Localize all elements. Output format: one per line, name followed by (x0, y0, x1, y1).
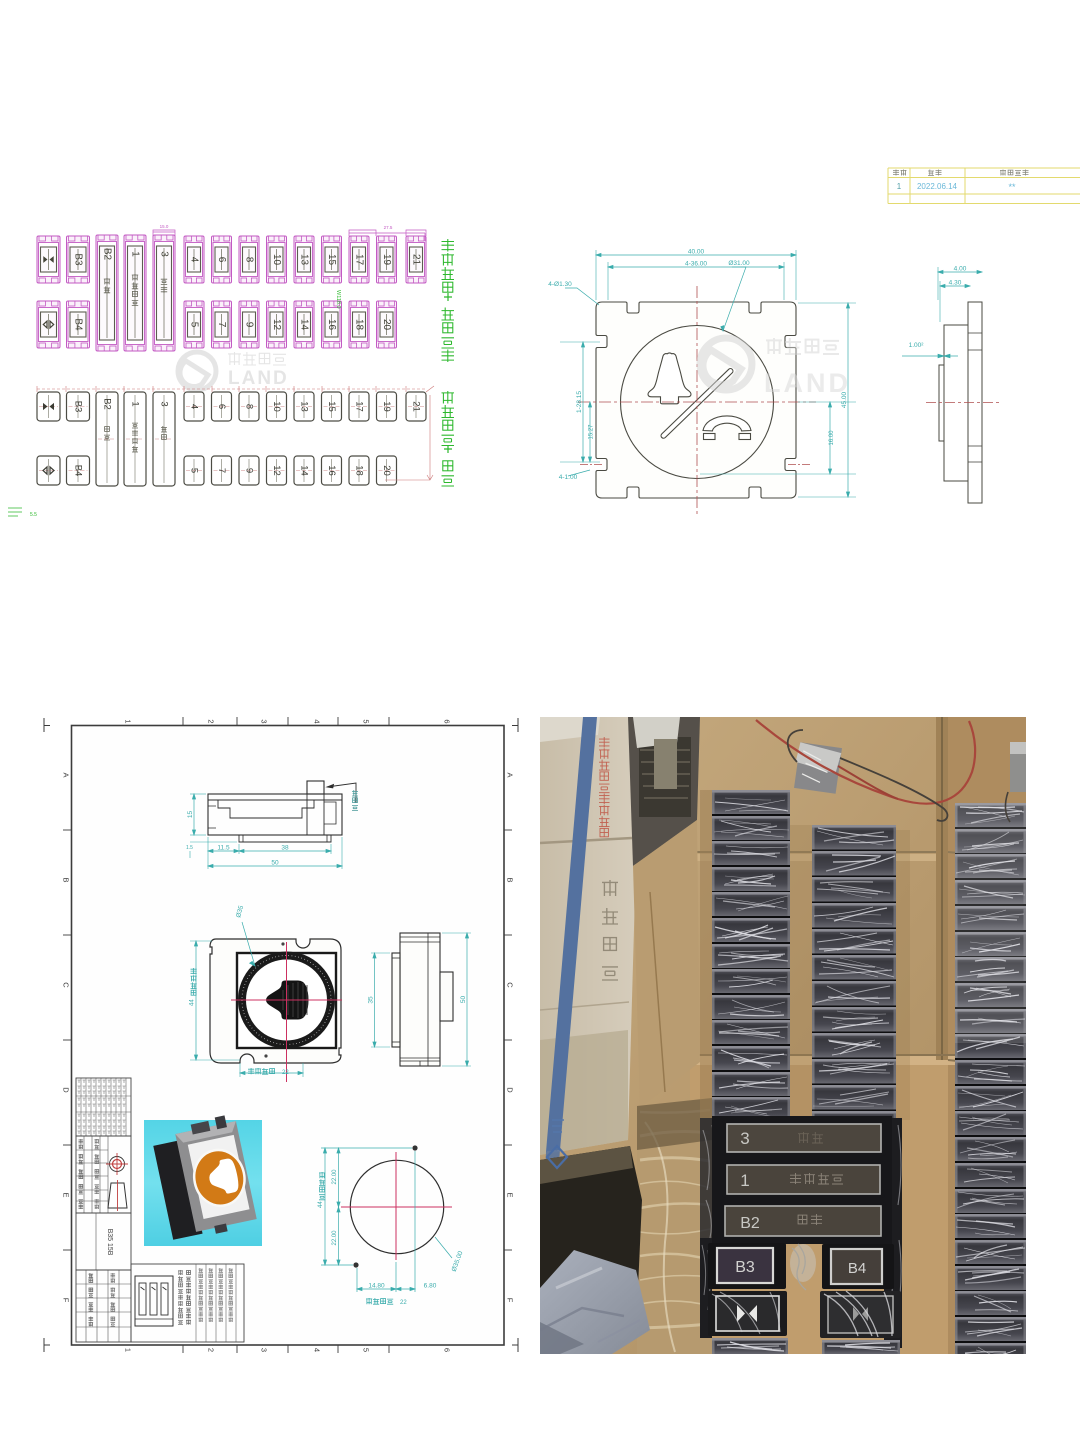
svg-text:A: A (506, 772, 515, 777)
svg-text:4-36.00: 4-36.00 (685, 261, 707, 268)
svg-text:50: 50 (460, 996, 467, 1004)
svg-text:LAND: LAND (228, 368, 289, 389)
svg-text:4: 4 (189, 257, 200, 263)
svg-text:C: C (62, 982, 71, 988)
svg-text:Ø31.00: Ø31.00 (728, 260, 750, 267)
svg-text:B2: B2 (740, 1215, 760, 1232)
svg-text:14: 14 (299, 465, 310, 476)
svg-text:1: 1 (124, 1348, 133, 1352)
svg-text:6: 6 (216, 257, 227, 263)
svg-text:8: 8 (244, 404, 255, 409)
svg-text:38: 38 (281, 845, 289, 852)
svg-text:15: 15 (326, 401, 337, 412)
svg-text:B4: B4 (73, 465, 84, 477)
svg-text:10: 10 (271, 254, 282, 266)
svg-text:15: 15 (326, 254, 337, 266)
svg-text:E: E (506, 1192, 515, 1197)
svg-text:19: 19 (381, 254, 392, 266)
svg-text:B35 15B: B35 15B (106, 1229, 113, 1256)
svg-text:8: 8 (244, 257, 255, 263)
svg-text:4-1.00: 4-1.00 (559, 474, 578, 481)
svg-text:3: 3 (740, 1129, 749, 1148)
svg-text:13: 13 (299, 401, 310, 412)
svg-text:F: F (62, 1298, 71, 1303)
svg-text:35: 35 (368, 996, 375, 1004)
svg-text:2022.06.14: 2022.06.14 (917, 182, 958, 191)
svg-text:LAND: LAND (764, 368, 851, 398)
svg-text:B3: B3 (73, 253, 84, 266)
svg-text:B2: B2 (102, 248, 113, 261)
svg-text:9: 9 (244, 322, 255, 328)
svg-text:1.5: 1.5 (186, 845, 193, 851)
svg-text:5: 5 (189, 322, 200, 328)
svg-text:21: 21 (411, 254, 422, 266)
svg-text:6.80: 6.80 (424, 1283, 437, 1290)
svg-text:17: 17 (354, 401, 365, 412)
svg-text:2: 2 (207, 1348, 216, 1352)
svg-text:B2: B2 (102, 398, 113, 410)
svg-text:1: 1 (130, 401, 141, 406)
svg-text:4.30: 4.30 (949, 280, 962, 287)
svg-text:D: D (62, 1087, 71, 1093)
svg-text:4.00: 4.00 (954, 266, 967, 273)
svg-text:27.5: 27.5 (384, 225, 393, 230)
svg-text:13: 13 (299, 254, 310, 266)
svg-text:A: A (62, 772, 71, 777)
svg-text:1: 1 (740, 1171, 749, 1190)
svg-text:B: B (62, 877, 71, 882)
svg-text:14.80: 14.80 (368, 1283, 385, 1290)
svg-text:C: C (506, 982, 515, 988)
svg-text:F: F (506, 1298, 515, 1303)
svg-text:15: 15 (187, 811, 194, 819)
svg-text:6: 6 (443, 719, 452, 723)
svg-text:9: 9 (244, 468, 255, 473)
svg-text:5: 5 (362, 719, 371, 723)
svg-text:15.0: 15.0 (160, 224, 169, 229)
svg-text:21: 21 (411, 401, 422, 412)
svg-text:B4: B4 (848, 1260, 866, 1277)
svg-text:D: D (506, 1087, 515, 1093)
svg-text:14: 14 (299, 319, 310, 331)
svg-text:E: E (62, 1192, 71, 1197)
svg-text:16: 16 (326, 465, 337, 476)
svg-text:5: 5 (362, 1348, 371, 1352)
svg-text:5: 5 (189, 468, 200, 473)
svg-text:1.00²: 1.00² (909, 342, 925, 349)
svg-text:W118.0: W118.0 (335, 290, 341, 309)
svg-text:18: 18 (354, 319, 365, 331)
svg-text:19: 19 (381, 401, 392, 412)
svg-text:3: 3 (260, 719, 269, 723)
svg-text:B: B (506, 877, 515, 882)
svg-text:B3: B3 (73, 401, 84, 413)
svg-text:22: 22 (282, 1070, 289, 1076)
svg-text:B3: B3 (735, 1259, 755, 1276)
svg-text:12: 12 (271, 319, 282, 331)
svg-text:11.5: 11.5 (217, 845, 230, 852)
svg-text:4: 4 (313, 1348, 322, 1352)
svg-text:22.00: 22.00 (332, 1230, 338, 1246)
svg-text:3: 3 (159, 251, 170, 257)
svg-text:40.00: 40.00 (688, 249, 705, 256)
svg-text:3: 3 (260, 1348, 269, 1352)
svg-text:7: 7 (216, 322, 227, 328)
svg-text:20: 20 (381, 319, 392, 331)
svg-text:1: 1 (130, 251, 141, 257)
svg-text:12: 12 (271, 465, 282, 476)
svg-text:3: 3 (159, 401, 170, 406)
svg-text:1: 1 (124, 719, 133, 723)
svg-text:4-Ø1.30: 4-Ø1.30 (548, 281, 572, 288)
svg-text:**: ** (1008, 182, 1016, 192)
svg-text:16.00: 16.00 (829, 430, 835, 446)
svg-text:20: 20 (381, 465, 392, 476)
svg-text:5.5: 5.5 (30, 512, 37, 518)
svg-text:6: 6 (216, 404, 227, 409)
svg-text:44: 44 (190, 999, 196, 1006)
svg-text:22.00: 22.00 (332, 1169, 338, 1185)
svg-text:50: 50 (271, 860, 279, 867)
svg-text:4: 4 (313, 719, 322, 723)
svg-text:22: 22 (400, 1300, 407, 1306)
svg-text:1-28.15: 1-28.15 (576, 391, 583, 413)
svg-text:6: 6 (443, 1348, 452, 1352)
svg-text:1: 1 (897, 182, 902, 191)
svg-text:4: 4 (189, 404, 200, 409)
svg-text:B4: B4 (73, 318, 84, 331)
svg-text:10: 10 (271, 401, 282, 412)
svg-text:44: 44 (318, 1201, 324, 1208)
svg-text:15.27: 15.27 (589, 424, 595, 440)
svg-text:17: 17 (354, 254, 365, 266)
svg-text:18: 18 (354, 465, 365, 476)
svg-text:7: 7 (216, 468, 227, 473)
svg-text:2: 2 (207, 719, 216, 723)
svg-text:16: 16 (326, 319, 337, 331)
